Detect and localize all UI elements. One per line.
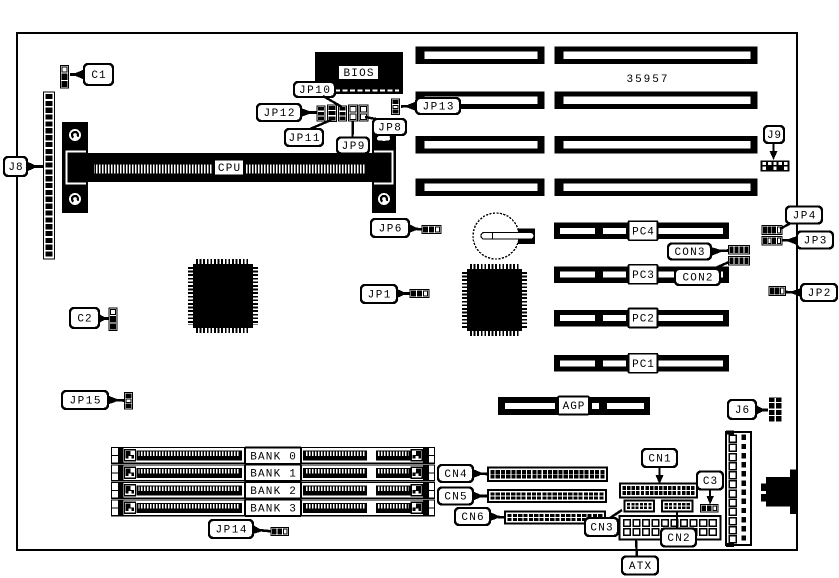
svg-text:C3: C3: [703, 476, 718, 488]
svg-text:J8: J8: [8, 162, 23, 174]
svg-text:CN3: CN3: [590, 523, 613, 535]
svg-text:JP2: JP2: [808, 288, 832, 300]
svg-text:35957: 35957: [626, 74, 669, 86]
svg-text:CN2: CN2: [667, 533, 690, 545]
svg-text:JP14: JP14: [216, 525, 248, 537]
svg-text:BANK 3: BANK 3: [250, 504, 297, 516]
svg-text:BANK 1: BANK 1: [250, 469, 297, 481]
svg-text:PC2: PC2: [632, 314, 655, 326]
svg-text:CN6: CN6: [461, 512, 484, 524]
svg-text:JP6: JP6: [379, 224, 403, 236]
svg-text:PC3: PC3: [632, 270, 655, 282]
svg-text:J9: J9: [767, 130, 782, 142]
svg-text:CON3: CON3: [674, 247, 705, 259]
svg-text:JP3: JP3: [804, 236, 828, 248]
svg-text:C2: C2: [77, 314, 92, 326]
svg-text:BANK 0: BANK 0: [250, 452, 297, 464]
svg-text:CN1: CN1: [648, 454, 671, 466]
svg-text:JP9: JP9: [342, 141, 366, 153]
svg-text:JP8: JP8: [378, 123, 402, 135]
svg-text:JP4: JP4: [793, 211, 817, 223]
svg-text:CON2: CON2: [682, 273, 713, 285]
svg-text:JP12: JP12: [264, 108, 296, 120]
svg-text:C1: C1: [91, 70, 106, 82]
svg-text:CPU: CPU: [218, 163, 241, 175]
svg-text:CN5: CN5: [444, 492, 467, 504]
svg-text:JP10: JP10: [299, 85, 331, 97]
svg-text:PC1: PC1: [632, 359, 655, 371]
svg-text:ATX: ATX: [629, 561, 652, 573]
svg-text:J6: J6: [735, 405, 750, 417]
svg-text:JP11: JP11: [289, 133, 321, 145]
svg-text:BANK 2: BANK 2: [250, 486, 297, 498]
svg-text:JP1: JP1: [368, 290, 392, 302]
svg-text:BIOS: BIOS: [343, 68, 374, 80]
svg-text:JP15: JP15: [70, 396, 102, 408]
svg-text:PC4: PC4: [632, 226, 655, 238]
svg-text:CN4: CN4: [444, 469, 467, 481]
svg-text:JP13: JP13: [423, 102, 455, 114]
svg-text:AGP: AGP: [563, 401, 586, 413]
